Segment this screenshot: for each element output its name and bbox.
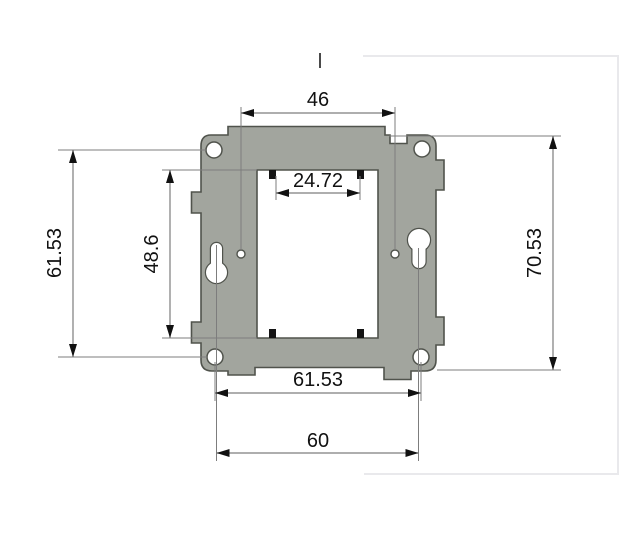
- corner-hole-top-left: [206, 142, 222, 158]
- drawing-canvas: 46 24.72 61.53 48.6 70.53 61.53 60: [0, 0, 640, 533]
- plate-outline: [192, 127, 445, 380]
- dim-label-top-hole-spacing: 46: [307, 89, 329, 111]
- pilot-hole-left: [237, 250, 245, 258]
- cutout-tab-bottom-right: [357, 329, 364, 338]
- dim-label-bottom-hole-spacing: 61.53: [293, 369, 343, 391]
- pilot-hole-right: [391, 250, 399, 258]
- dim-label-left-vertical-hole-spacing: 61.53: [44, 228, 66, 278]
- technical-drawing-svg: 46 24.72 61.53 48.6 70.53 61.53 60: [0, 0, 640, 533]
- dim-label-overall-height: 70.53: [524, 228, 546, 278]
- dim-label-keyhole-spacing: 60: [307, 430, 329, 452]
- cutout-tab-bottom-left: [269, 329, 276, 338]
- corner-hole-top-right: [414, 141, 430, 157]
- dim-label-inner-opening-height: 48.6: [141, 235, 163, 274]
- dim-label-inner-opening-width: 24.72: [293, 170, 343, 192]
- cutout-tab-top-left: [269, 170, 276, 179]
